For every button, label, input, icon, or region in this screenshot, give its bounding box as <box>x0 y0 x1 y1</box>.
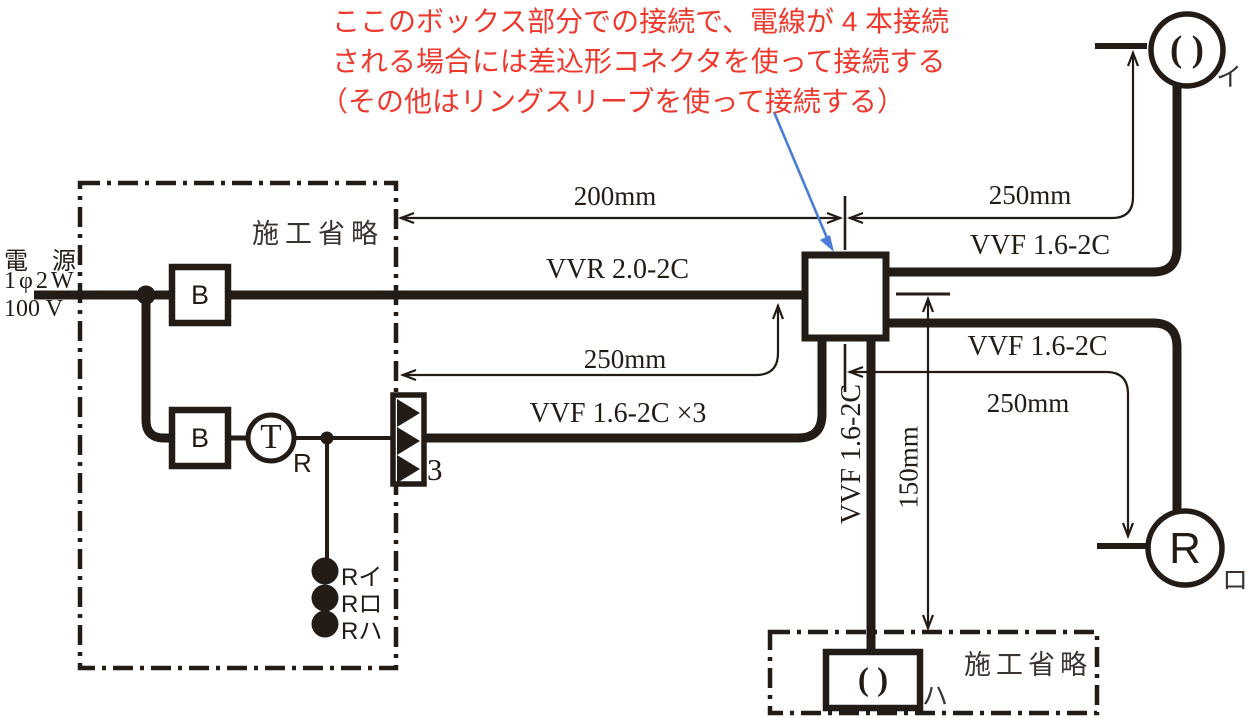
junction-dot-switch-line <box>321 432 334 445</box>
ceiling-ha-symbol-glyph: ( ) <box>826 662 920 699</box>
dim-250mm-mid-label: 250mm <box>555 344 695 375</box>
cable-label-vvr: VVR 2.0-2C <box>505 254 730 286</box>
junction-box-symbol <box>805 255 886 338</box>
omission-left-label: 施工省略 <box>252 212 384 251</box>
dim-250mm-top-label: 250mm <box>960 180 1100 211</box>
transformer-label: T <box>248 417 294 457</box>
dim-150mm-label: 150mm <box>894 388 925 548</box>
cable-label-vvf-right: VVF 1.6-2C <box>940 331 1135 363</box>
lamp-ro-terminal-label: ロ <box>1222 560 1248 597</box>
omission-bottom-label: 施工省略 <box>964 643 1092 682</box>
transformer-sub-label: R <box>293 448 312 479</box>
lamp-i-symbol-glyph: ( ) <box>1151 28 1223 71</box>
lamp-ro-letter: R <box>1160 524 1210 574</box>
power-source-voltage: 100 V <box>4 296 63 323</box>
annotation-arrow <box>774 112 834 252</box>
dim-250mm-right-line <box>845 344 1133 537</box>
annotation-line-3: （その他はリングスリーブを使って接続する） <box>320 82 905 122</box>
wiring-diagram: ここのボックス部分での接続で、電線が 4 本接続 される場合には差込形コネクタを… <box>0 0 1248 718</box>
remote-relay-symbol <box>393 395 424 484</box>
cable-label-vvf-top: VVF 1.6-2C <box>945 230 1135 262</box>
cable-label-vvf-x3: VVF 1.6-2C ×3 <box>498 398 738 430</box>
lamp-i-terminal-label: イ <box>1216 57 1242 94</box>
remote-switch-label-ha: Rハ <box>341 611 382 646</box>
cable-label-vvf-down: VVF 1.6-2C <box>836 334 868 574</box>
dim-200mm-label: 200mm <box>545 181 685 212</box>
annotation-line-1: ここのボックス部分での接続で、電線が 4 本接続 <box>332 2 949 42</box>
dim-250mm-right-label: 250mm <box>958 388 1098 419</box>
junction-dot-power <box>137 286 156 305</box>
relay-count-label: 3 <box>427 452 443 488</box>
breaker2-label: B <box>172 423 228 454</box>
power-source-phase: 1φ2W <box>4 268 77 295</box>
breaker1-label: B <box>172 280 228 311</box>
ceiling-ha-terminal-label: ハ <box>922 676 948 713</box>
annotation-line-2: される場合には差込形コネクタを使って接続する <box>332 42 945 82</box>
remote-switch-dots <box>312 558 339 638</box>
